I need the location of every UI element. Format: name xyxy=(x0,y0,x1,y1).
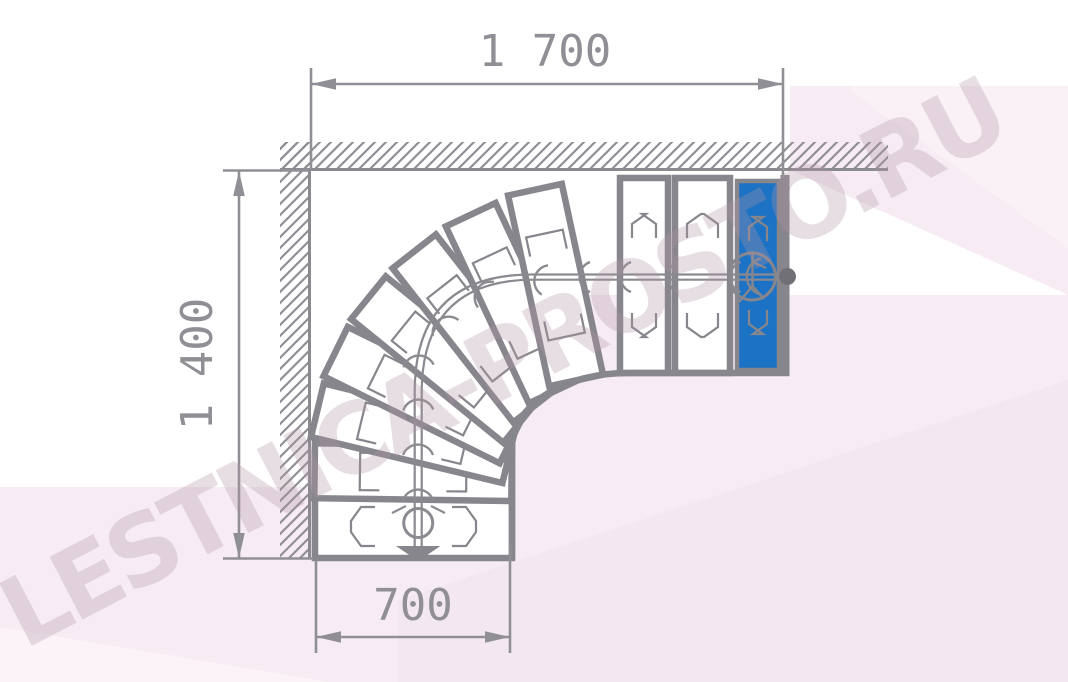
dim-bottom-label: 700 xyxy=(373,580,452,631)
stair-plan-page: 1 700 1 400 700 LESTNICA-PROSTO.RU xyxy=(0,0,1068,682)
dim-left-label: 1 400 xyxy=(172,298,223,430)
stair-plan-drawing: 1 700 1 400 700 LESTNICA-PROSTO.RU xyxy=(0,0,1068,682)
dim-top-label: 1 700 xyxy=(479,26,611,77)
